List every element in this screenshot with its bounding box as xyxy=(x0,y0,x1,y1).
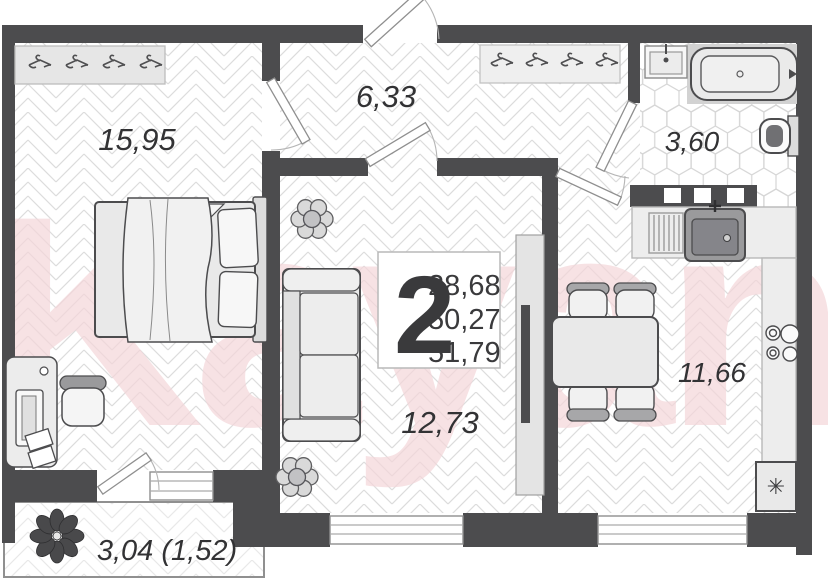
sofa-icon xyxy=(283,269,360,441)
living-room-window xyxy=(330,516,463,544)
hallway-area-label: 6,33 xyxy=(356,79,416,114)
apartment-info-box: 2 28,68 50,27 51,79 xyxy=(378,252,501,377)
fridge-icon: ✳ xyxy=(756,462,796,511)
toilet-icon xyxy=(760,116,799,156)
hallway-wardrobe-icon xyxy=(480,45,620,83)
balcony-plant-icon xyxy=(30,509,84,563)
bed-icon xyxy=(95,197,267,342)
living-room-area-label: 12,73 xyxy=(401,405,479,440)
bedroom-balcony-window xyxy=(150,472,213,500)
living-area-value: 28,68 xyxy=(428,270,501,302)
kitchen-window xyxy=(598,516,747,544)
vent-shaft xyxy=(630,185,757,207)
floor-plan-svg: Kayan xyxy=(0,0,828,585)
plant-icon xyxy=(276,458,318,497)
bedroom-area-label: 15,95 xyxy=(98,122,176,157)
entrance-door-icon xyxy=(365,0,439,47)
desk-chair-icon xyxy=(60,376,106,426)
tv-icon xyxy=(516,235,544,495)
kitchen-area-label: 11,66 xyxy=(678,357,746,388)
plant-icon xyxy=(291,200,333,239)
floor-plan-page: Kayan xyxy=(0,0,828,585)
apartment-area-value: 50,27 xyxy=(428,304,501,336)
fridge-snowflake-icon: ✳ xyxy=(767,474,785,499)
wardrobe-icon xyxy=(15,46,165,84)
bathroom-area-label: 3,60 xyxy=(665,126,720,157)
kitchen-sink-icon xyxy=(685,200,745,261)
bathtub-icon xyxy=(691,48,797,100)
balcony-area-label: 3,04 (1,52) xyxy=(97,535,237,567)
bathroom-sink-icon xyxy=(645,44,687,78)
total-area-value: 51,79 xyxy=(428,337,501,369)
